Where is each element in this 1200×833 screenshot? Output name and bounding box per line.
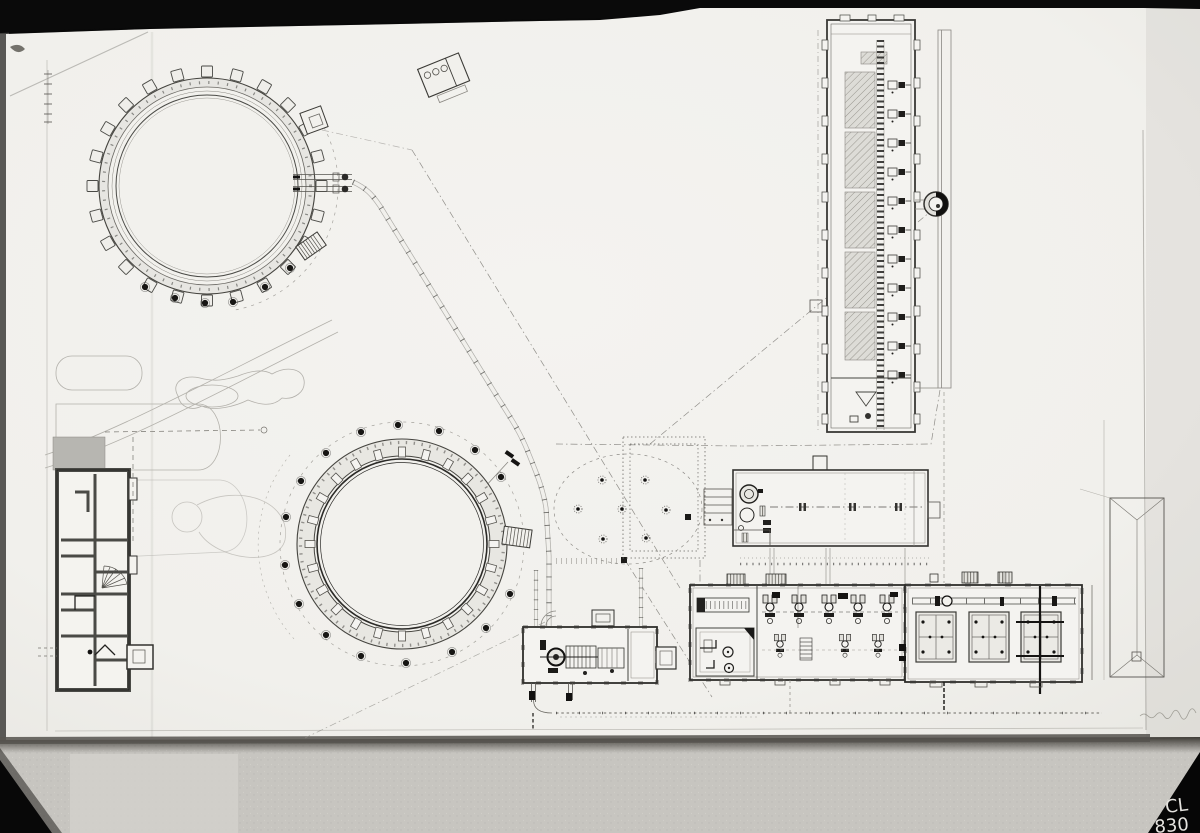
mat-light-card [70, 754, 238, 833]
paper-right-strip [1146, 8, 1200, 737]
junction-block-2 [685, 514, 691, 520]
purifier-walls [690, 585, 905, 680]
holder1-wall-inner [108, 87, 306, 285]
holder2-stairs [502, 526, 532, 548]
office-walls [57, 470, 129, 690]
purifier-house [690, 574, 905, 685]
office-closet-1 [129, 478, 137, 500]
stairs-icon [502, 526, 532, 548]
tank-house-wall-block-2 [899, 656, 906, 661]
tank-house [899, 572, 1092, 694]
retort-elevator-drum [924, 192, 948, 216]
pump-circle [942, 596, 952, 606]
office-closet-2 [129, 556, 137, 574]
retort-hatched-blocks [845, 72, 875, 360]
photographed-site-plan: CL 830 [0, 0, 1200, 833]
office-annex [127, 645, 153, 669]
tank-house-wall-block-1 [899, 644, 906, 651]
machine-house-chimney [592, 610, 614, 626]
valve-icon [342, 186, 349, 193]
corner-label-line2: 830 [1154, 814, 1190, 833]
valve-icon [342, 174, 349, 181]
machine-house-annex [656, 647, 676, 669]
office-yard-shaded [53, 437, 105, 470]
site-plan-svg: CL 830 [0, 0, 1200, 833]
